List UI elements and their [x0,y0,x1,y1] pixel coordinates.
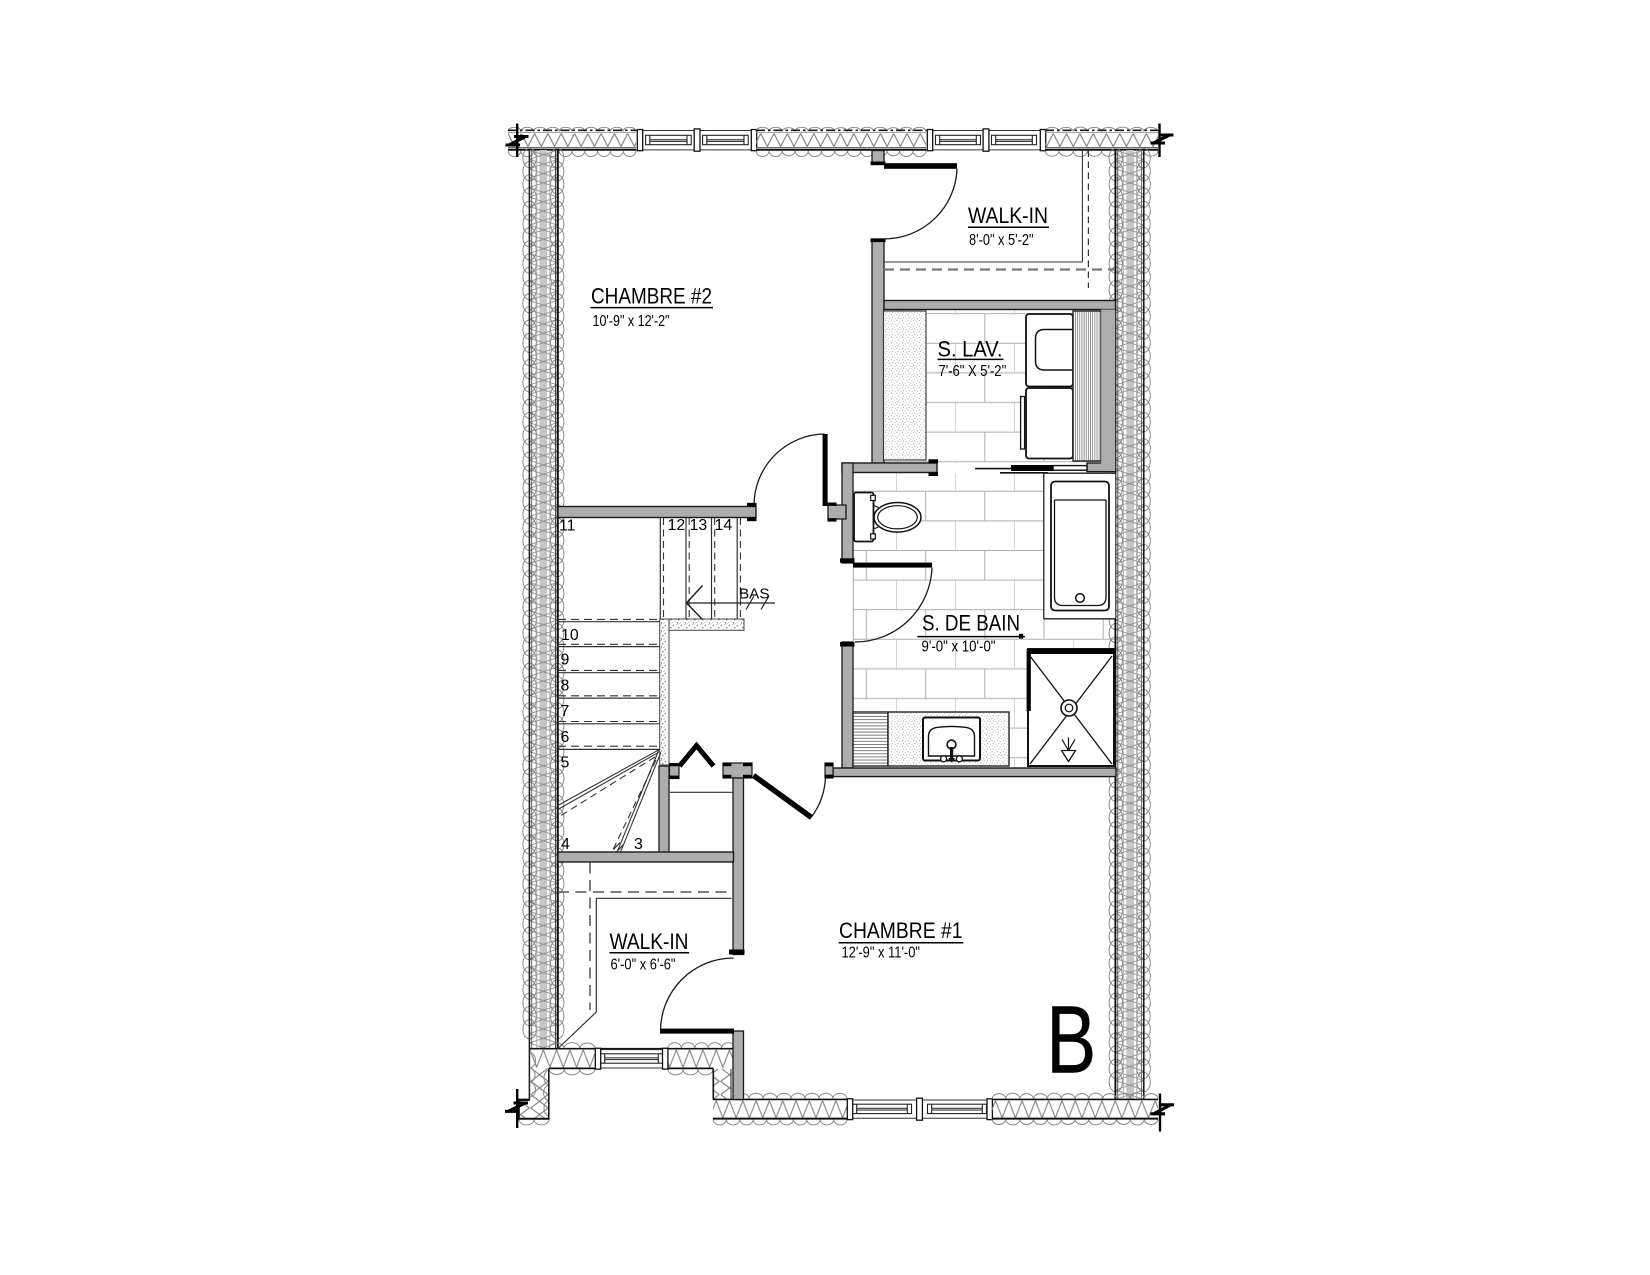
svg-text:CHAMBRE #2: CHAMBRE #2 [591,283,712,308]
svg-text:3: 3 [634,836,643,853]
svg-text:7: 7 [561,703,570,720]
svg-text:CHAMBRE #1: CHAMBRE #1 [839,918,963,943]
svg-text:10'-9" x 12'-2": 10'-9" x 12'-2" [593,313,670,330]
svg-text:6'-0" x 6'-6": 6'-0" x 6'-6" [611,956,676,973]
svg-text:14: 14 [715,517,733,534]
svg-text:BAS: BAS [739,587,770,603]
svg-text:10: 10 [561,627,579,644]
svg-text:S. DE BAIN: S. DE BAIN [922,610,1020,635]
svg-text:9'-0" x 10'-0": 9'-0" x 10'-0" [922,639,996,656]
svg-text:S. LAV.: S. LAV. [938,337,1003,362]
svg-text:12'-9" x 11'-0": 12'-9" x 11'-0" [842,944,921,961]
svg-text:13: 13 [690,517,708,534]
svg-text:5: 5 [561,755,570,772]
svg-text:WALK-IN: WALK-IN [968,203,1048,228]
svg-text:7'-6" X 5'-2'': 7'-6" X 5'-2'' [939,363,1007,380]
svg-text:6: 6 [561,729,570,746]
svg-text:8: 8 [561,678,570,695]
svg-text:8'-0" x 5'-2": 8'-0" x 5'-2" [969,232,1034,249]
svg-text:11: 11 [559,518,576,535]
svg-text:12: 12 [668,517,686,534]
svg-text:B: B [1046,987,1096,1094]
svg-text:4: 4 [561,836,570,853]
svg-text:9: 9 [561,652,570,669]
svg-text:WALK-IN: WALK-IN [610,929,689,954]
